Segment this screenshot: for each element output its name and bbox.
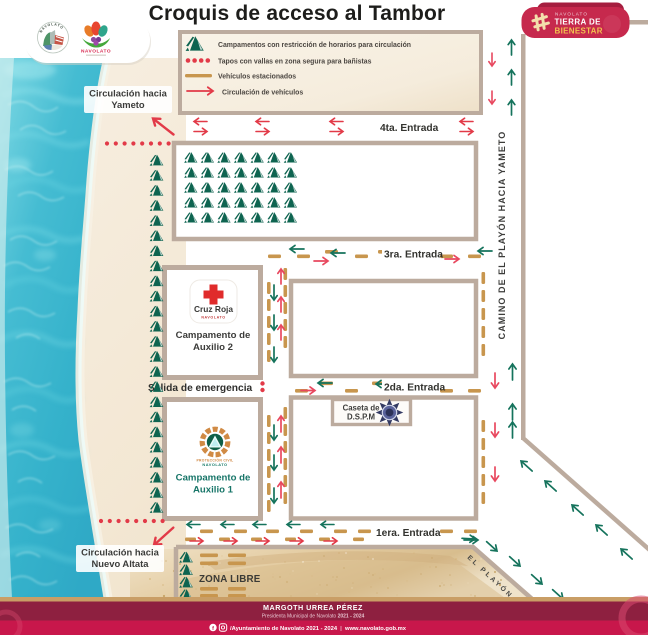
svg-text:Circulación hacia: Circulación hacia xyxy=(81,547,159,558)
svg-text:CAMINO DE EL PLAYÓN HACIA YAME: CAMINO DE EL PLAYÓN HACIA YAMETO xyxy=(496,131,507,340)
svg-text:Campamento de: Campamento de xyxy=(176,330,251,341)
svg-text:/Ayuntamiento de Navolato 2021: /Ayuntamiento de Navolato 2021 - 2024 | … xyxy=(230,626,407,632)
svg-text:Tapos con vallas en zona segur: Tapos con vallas en zona segura para bañ… xyxy=(218,59,372,66)
svg-text:Caseta de: Caseta de xyxy=(343,404,381,413)
svg-text:3ra. Entrada: 3ra. Entrada xyxy=(384,250,443,261)
svg-text:Campamentos con restricción de: Campamentos con restricción de horarios … xyxy=(218,42,411,49)
svg-text:f: f xyxy=(212,626,214,632)
svg-text:D.S.P.M: D.S.P.M xyxy=(347,413,375,422)
svg-text:2da. Entrada: 2da. Entrada xyxy=(384,383,445,394)
svg-text:ZONA LIBRE: ZONA LIBRE xyxy=(199,574,261,585)
svg-text:Campamento de: Campamento de xyxy=(176,473,251,484)
svg-text:Cruz Roja: Cruz Roja xyxy=(194,304,233,314)
svg-text:Circulación de vehículos: Circulación de vehículos xyxy=(222,90,303,97)
svg-text:MARGOTH URREA PÉREZ: MARGOTH URREA PÉREZ xyxy=(263,603,363,612)
svg-text:1era. Entrada: 1era. Entrada xyxy=(376,528,441,539)
svg-text:TIERRA DE: TIERRA DE xyxy=(555,18,602,27)
svg-text:Yameto: Yameto xyxy=(111,99,145,110)
svg-text:NAVOLATO: NAVOLATO xyxy=(201,316,225,320)
svg-text:NAVOLATO: NAVOLATO xyxy=(555,12,588,17)
svg-text:Croquis de acceso al Tambor: Croquis de acceso al Tambor xyxy=(149,2,446,25)
svg-text:BIENESTAR: BIENESTAR xyxy=(555,27,603,36)
svg-text:NAVOLATO: NAVOLATO xyxy=(202,462,227,467)
svg-text:Salida de emergencia: Salida de emergencia xyxy=(148,383,253,394)
svg-text:NAVOLATO: NAVOLATO xyxy=(81,49,111,55)
svg-text:Presidenta Municipal de Navola: Presidenta Municipal de Navolato 2021 - … xyxy=(262,614,365,620)
svg-text:Auxilio 1: Auxilio 1 xyxy=(193,485,234,496)
svg-text:Nuevo Altata: Nuevo Altata xyxy=(92,558,150,569)
svg-text:Vehículos estacionados: Vehículos estacionados xyxy=(218,74,296,81)
svg-text:Circulación hacia: Circulación hacia xyxy=(89,88,167,99)
svg-text:4ta. Entrada: 4ta. Entrada xyxy=(380,123,439,134)
svg-text:Auxilio 2: Auxilio 2 xyxy=(193,342,233,353)
